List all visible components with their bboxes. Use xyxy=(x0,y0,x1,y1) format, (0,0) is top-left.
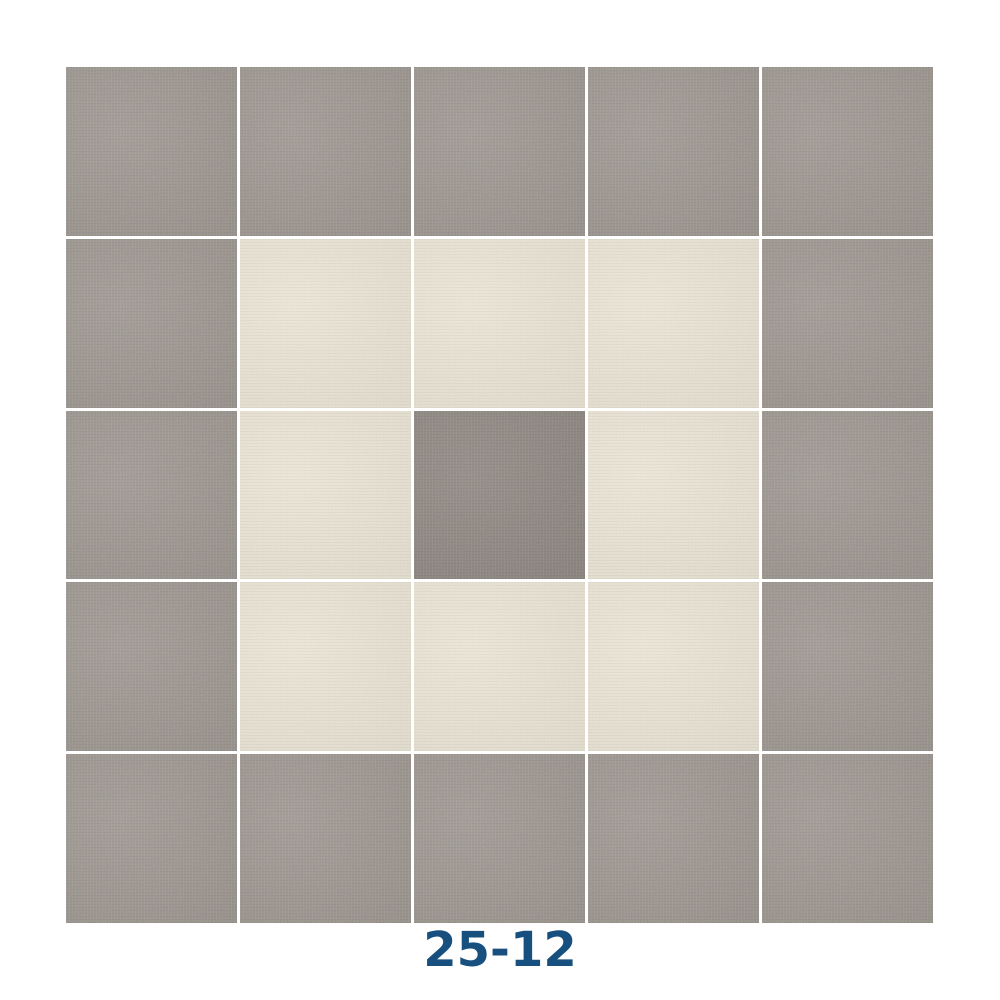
carpet-grain-texture xyxy=(762,582,933,751)
carpet-grain-texture xyxy=(414,754,585,923)
gray-carpet-tile xyxy=(588,754,759,923)
gray-carpet-tile xyxy=(240,67,411,236)
gray-carpet-tile xyxy=(414,67,585,236)
carpet-grain-texture xyxy=(240,754,411,923)
carpet-grain-texture xyxy=(240,411,411,580)
cream-carpet-tile xyxy=(414,239,585,408)
carpet-grain-texture xyxy=(66,67,237,236)
gray-carpet-tile xyxy=(66,582,237,751)
carpet-grain-texture xyxy=(414,67,585,236)
carpet-grain-texture xyxy=(762,239,933,408)
carpet-grain-texture xyxy=(588,411,759,580)
carpet-grain-texture xyxy=(66,411,237,580)
carpet-grain-texture xyxy=(762,754,933,923)
carpet-grain-texture xyxy=(762,67,933,236)
gray-carpet-tile xyxy=(414,754,585,923)
cream-carpet-tile xyxy=(414,582,585,751)
gray-carpet-tile xyxy=(66,411,237,580)
carpet-grain-texture xyxy=(414,239,585,408)
dark-gray-center-carpet-tile xyxy=(414,411,585,580)
carpet-grain-texture xyxy=(588,67,759,236)
cream-carpet-tile xyxy=(588,239,759,408)
cream-carpet-tile xyxy=(240,582,411,751)
gray-carpet-tile xyxy=(588,67,759,236)
carpet-grain-texture xyxy=(414,582,585,751)
cream-carpet-tile xyxy=(240,411,411,580)
carpet-grain-texture xyxy=(240,239,411,408)
gray-carpet-tile xyxy=(66,239,237,408)
carpet-grain-texture xyxy=(588,754,759,923)
gray-carpet-tile xyxy=(66,754,237,923)
gray-carpet-tile xyxy=(66,67,237,236)
carpet-grain-texture xyxy=(414,411,585,580)
cream-carpet-tile xyxy=(240,239,411,408)
carpet-grain-texture xyxy=(762,411,933,580)
gray-carpet-tile xyxy=(762,411,933,580)
cream-carpet-tile xyxy=(588,582,759,751)
carpet-grain-texture xyxy=(240,582,411,751)
gray-carpet-tile xyxy=(762,754,933,923)
carpet-grain-texture xyxy=(588,239,759,408)
gray-carpet-tile xyxy=(240,754,411,923)
gray-carpet-tile xyxy=(762,582,933,751)
product-code-label: 25-12 xyxy=(0,926,1000,974)
carpet-grain-texture xyxy=(588,582,759,751)
gray-carpet-tile xyxy=(762,67,933,236)
carpet-grain-texture xyxy=(66,239,237,408)
cream-carpet-tile xyxy=(588,411,759,580)
carpet-grain-texture xyxy=(66,582,237,751)
carpet-grain-texture xyxy=(240,67,411,236)
tile-grid xyxy=(66,67,933,923)
gray-carpet-tile xyxy=(762,239,933,408)
carpet-grain-texture xyxy=(66,754,237,923)
